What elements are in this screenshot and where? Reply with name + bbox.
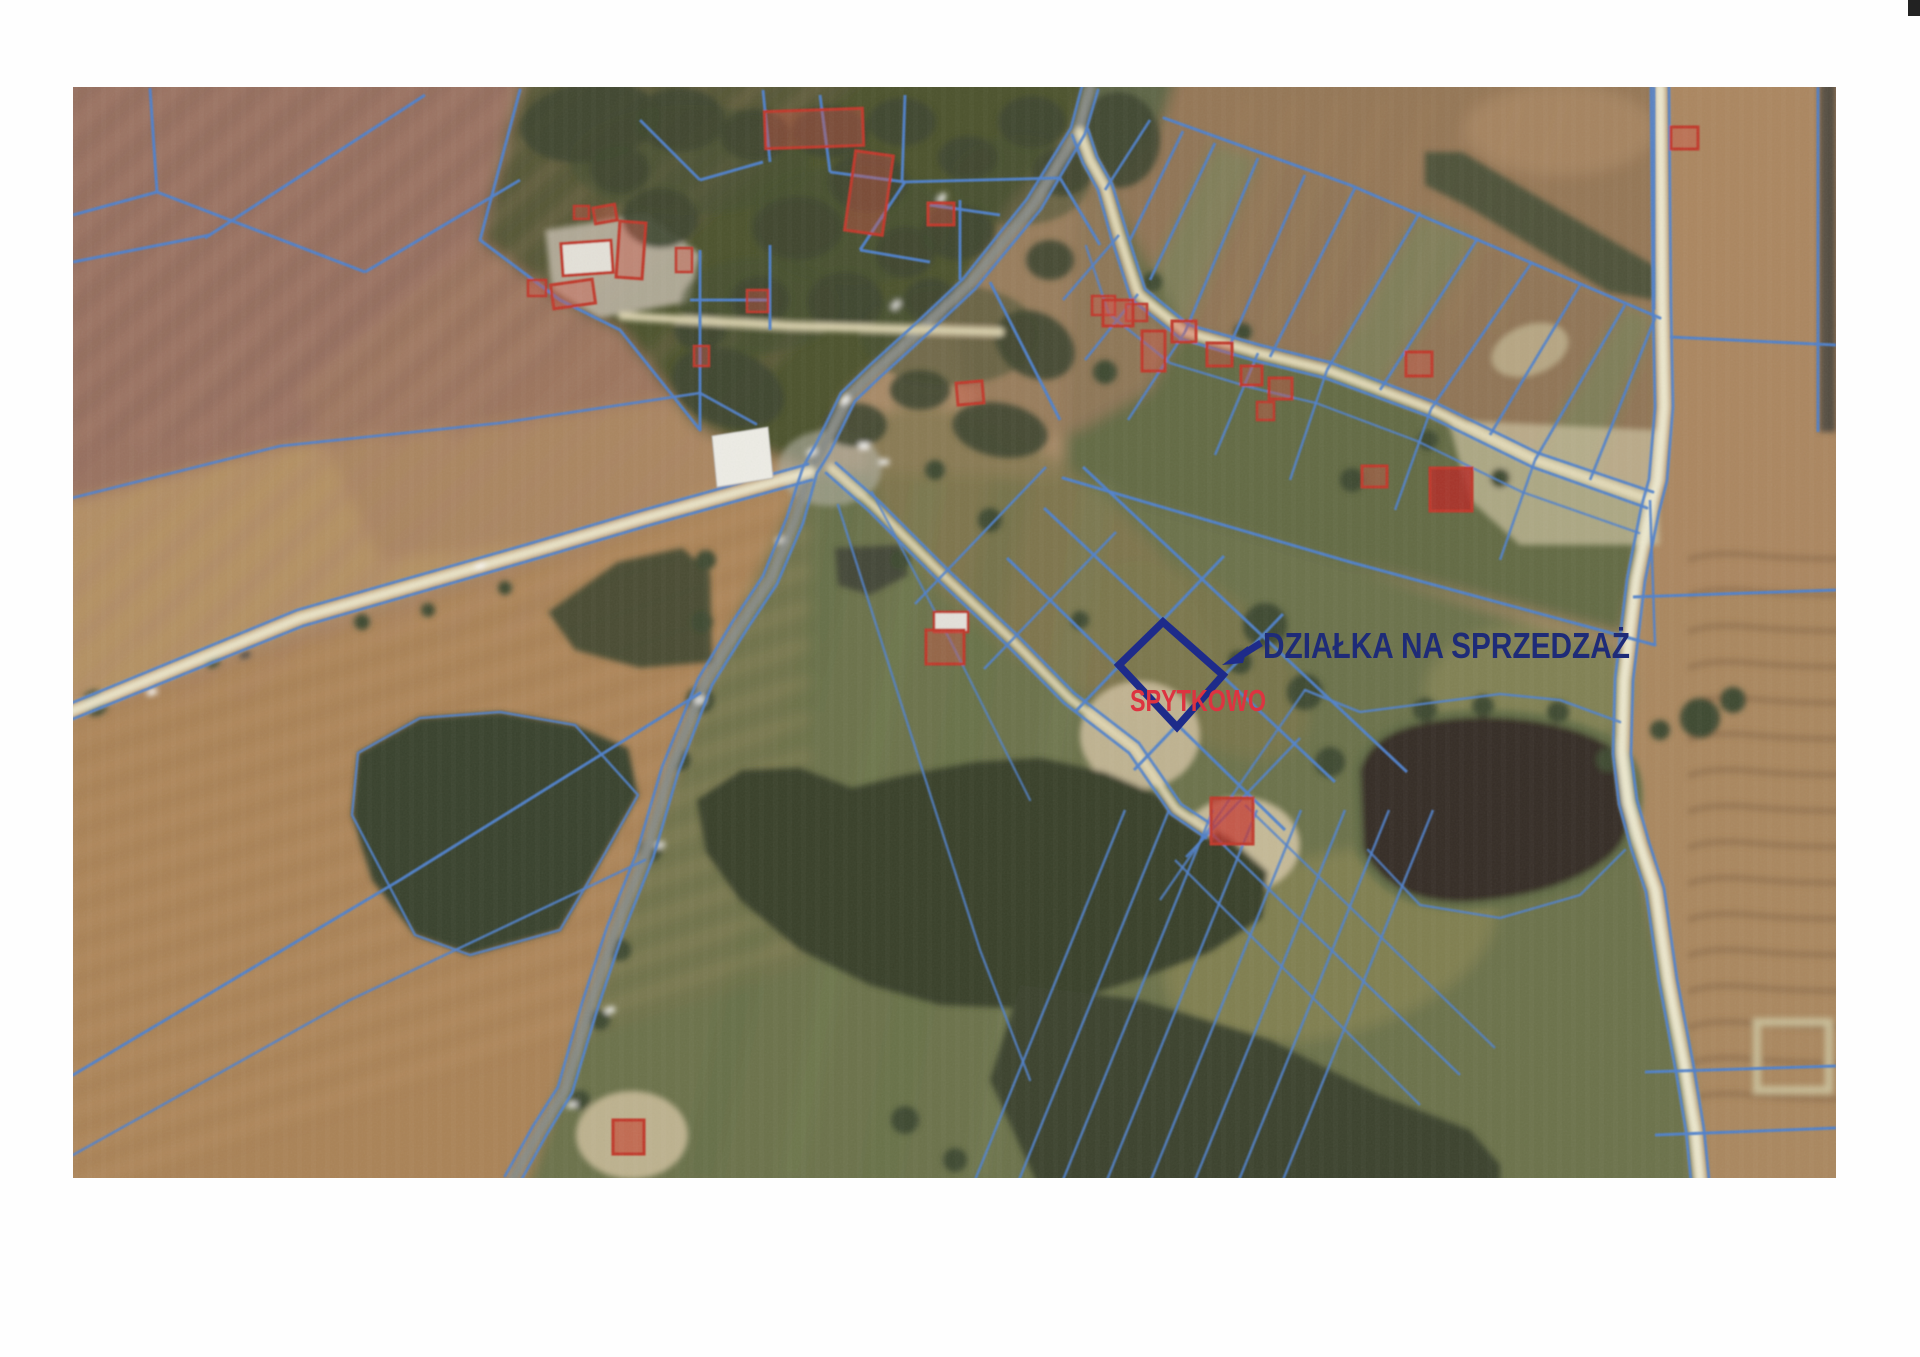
svg-text:SPYTKOWO: SPYTKOWO: [1130, 683, 1266, 718]
svg-text:DZIAŁKA NA SPRZEDZAŻ: DZIAŁKA NA SPRZEDZAŻ: [1263, 625, 1630, 666]
